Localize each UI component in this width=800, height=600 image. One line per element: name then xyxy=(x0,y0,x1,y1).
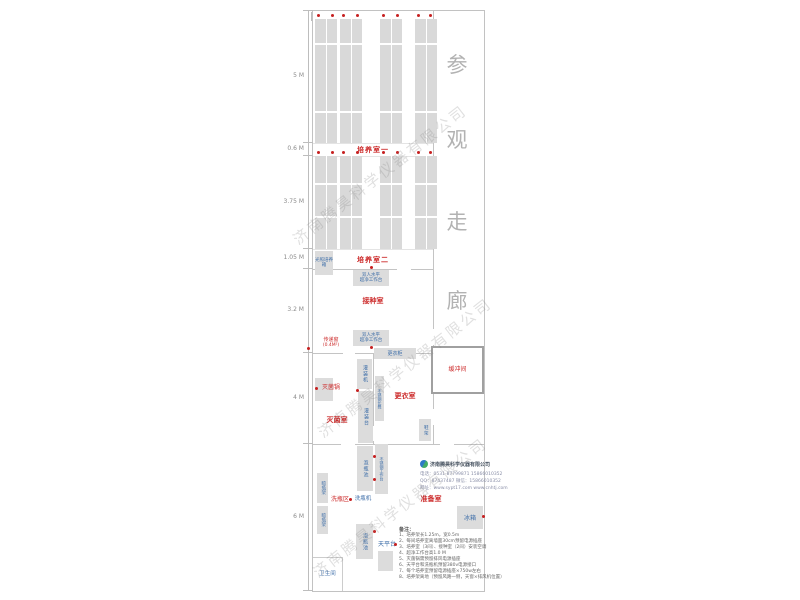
clean-bench-label: 超净工作台 xyxy=(360,338,383,344)
floorplan-canvas: 济南腾昊科学仪器有限公司 济南腾昊科学仪器有限公司 济南腾昊科学仪器有限公司 4… xyxy=(0,0,800,600)
power-outlet-dot xyxy=(373,455,376,458)
notes-list: 1、培养架长1.25m，宽0.5m2、每间培养室离墙面30cm预留电源插座3、培… xyxy=(399,533,481,581)
shelf-divider xyxy=(391,156,392,249)
band-line xyxy=(313,249,433,250)
power-outlet-dot xyxy=(429,151,432,154)
door-opening xyxy=(397,268,411,271)
room-label-culture2: 培养室二 xyxy=(333,255,413,267)
dimension-tick xyxy=(303,443,313,444)
shelf-divider xyxy=(426,19,427,143)
power-outlet-dot xyxy=(373,530,376,533)
dim-left-label: 6 M xyxy=(270,513,304,520)
drying-rack-2: 晾瓶架 xyxy=(317,506,328,534)
dimension-tick xyxy=(303,352,313,353)
shelf-divider xyxy=(426,156,427,249)
buffer-room: 缓冲间 xyxy=(431,346,484,394)
room-label-buffer: 缓冲间 xyxy=(433,348,482,392)
dimension-tick xyxy=(303,590,313,591)
dimension-tick xyxy=(303,142,313,143)
power-outlet-dot xyxy=(356,389,359,392)
light-incubator-label: 光照培养箱 xyxy=(315,258,333,268)
room-label-toilet: 卫生间 xyxy=(313,558,342,591)
balance-table-box xyxy=(378,551,393,571)
room-label-prep: 准备室 xyxy=(415,494,447,505)
room-label-inoculation: 接种室 xyxy=(343,296,403,308)
shelf-divider xyxy=(326,156,327,249)
shelf-divider xyxy=(380,43,402,45)
power-outlet-dot xyxy=(315,387,318,390)
drying-rack-label: 晾瓶架 xyxy=(320,481,325,495)
shoe-rack-label: 鞋架 xyxy=(423,425,428,436)
light-incubator: 光照培养箱 xyxy=(315,251,333,275)
room-label-changing: 更衣室 xyxy=(385,391,425,403)
shelf-divider xyxy=(415,216,437,218)
drying-rack-1: 晾瓶架 xyxy=(317,473,328,503)
power-outlet-dot xyxy=(342,14,345,17)
shelf-divider xyxy=(340,43,362,45)
soak-pool-1: 泡瓶池 xyxy=(357,446,373,491)
company-logo xyxy=(420,460,428,468)
filling-machine: 灌装机 xyxy=(357,359,372,389)
dim-left-label: 0.6 M xyxy=(270,145,304,152)
dim-left-label: 1.05 M xyxy=(270,254,304,261)
stainless-bench-label: 不锈钢长凳 xyxy=(378,389,382,409)
power-outlet-dot xyxy=(396,14,399,17)
power-outlet-dot xyxy=(342,151,345,154)
shelf-divider xyxy=(351,19,352,143)
shelf-divider xyxy=(326,19,327,143)
power-outlet-dot xyxy=(307,347,310,350)
shelf-divider xyxy=(315,43,337,45)
shelf-divider xyxy=(315,111,337,113)
autoclave-label: 灭菌锅 xyxy=(316,383,346,393)
power-outlet-dot xyxy=(482,515,485,518)
power-outlet-dot xyxy=(349,498,352,501)
power-outlet-dot xyxy=(331,151,334,154)
drying-rack-label: 晾瓶架 xyxy=(320,513,325,527)
locker-label: 更衣柜 xyxy=(387,350,402,357)
power-outlet-dot xyxy=(356,151,359,154)
filling-machine-label: 灌装机 xyxy=(362,365,367,383)
clean-bench-label: 超净工作台 xyxy=(360,278,383,284)
clean-bench-2: 双人水平 超净工作台 xyxy=(353,330,389,346)
door-opening xyxy=(341,443,355,446)
power-outlet-dot xyxy=(370,266,373,269)
corridor-char: 走 xyxy=(443,208,471,234)
clean-bench-1: 双人水平 超净工作台 xyxy=(353,270,389,286)
room-label-wash-area: 洗瓶区 xyxy=(329,496,351,505)
left-dimension-line xyxy=(308,10,309,590)
notes-title: 备注： xyxy=(399,526,481,533)
shelf-divider xyxy=(380,183,402,185)
company-phone: 电话：0531-87799871 15866010352 xyxy=(420,471,502,477)
shelf-divider xyxy=(315,183,337,185)
soak-pool-label: 泡瓶池 xyxy=(362,533,367,551)
shelf-divider xyxy=(315,216,337,218)
power-outlet-dot xyxy=(382,151,385,154)
shelf-divider xyxy=(340,183,362,185)
dim-left-label: 3.75 M xyxy=(270,198,304,205)
dim-left-label: 5 M xyxy=(270,72,304,79)
corridor-char: 观 xyxy=(443,126,471,152)
stainless-bench: 不锈钢长凳 xyxy=(375,376,384,421)
shelf-divider xyxy=(351,156,352,249)
power-outlet-dot xyxy=(370,346,373,349)
toilet-room: 卫生间 xyxy=(313,557,343,591)
company-name: 济南腾昊科学仪器有限公司 xyxy=(430,461,490,468)
corridor-char: 参 xyxy=(443,51,471,77)
power-outlet-dot xyxy=(382,14,385,17)
company-qq: QQ：87437487 微信：15866010352 xyxy=(420,478,501,484)
door-opening xyxy=(432,329,435,345)
power-outlet-dot xyxy=(317,14,320,17)
power-outlet-dot xyxy=(417,151,420,154)
shelf-divider xyxy=(380,216,402,218)
power-outlet-dot xyxy=(317,151,320,154)
stainless-worktable: 不锈钢工作台 xyxy=(375,444,388,494)
stainless-worktable-label: 不锈钢工作台 xyxy=(380,457,384,481)
power-outlet-dot xyxy=(373,478,376,481)
locker: 更衣柜 xyxy=(374,348,416,359)
door-opening xyxy=(343,352,355,355)
filling-table: 灌装台 xyxy=(358,391,373,443)
shelf-divider xyxy=(380,111,402,113)
dimension-tick xyxy=(303,268,313,269)
dim-left-label: 4 M xyxy=(270,394,304,401)
shelf-divider xyxy=(391,19,392,143)
fridge-label: 冰箱 xyxy=(464,513,476,522)
dimension-tick xyxy=(303,155,313,156)
door-opening xyxy=(432,409,435,425)
wall-middle-prep xyxy=(313,444,484,445)
power-outlet-dot xyxy=(394,543,397,546)
door-opening xyxy=(440,443,454,446)
filling-table-label: 灌装台 xyxy=(363,408,368,426)
dimension-tick xyxy=(303,248,313,249)
shelf-divider xyxy=(415,183,437,185)
lab-floorplan: 培养室一 培养室二 接种室 灭菌室 更衣室 准备室 洗瓶区 传递窗 (0.4M²… xyxy=(312,10,485,592)
dimension-tick xyxy=(303,10,313,11)
pass-window-size: (0.4M²) xyxy=(317,343,345,348)
soak-pool-2: 泡瓶池 xyxy=(356,524,373,559)
note-item: 8、培养架离地（预留风路一侧，天窗×排风机位置） xyxy=(399,575,481,581)
corridor-char: 廊 xyxy=(443,287,471,313)
soak-pool-label: 泡瓶池 xyxy=(363,460,368,478)
room-label-sterilization: 灭菌室 xyxy=(316,415,358,427)
pass-window: 传递窗 (0.4M²) xyxy=(317,336,345,348)
shelf-divider xyxy=(340,216,362,218)
pass-window-label: 传递窗 xyxy=(317,336,345,343)
shelf-divider xyxy=(340,111,362,113)
power-outlet-dot xyxy=(331,14,334,17)
shelf-divider xyxy=(415,111,437,113)
power-outlet-dot xyxy=(396,151,399,154)
dim-left-label: 3.2 M xyxy=(270,306,304,313)
bottle-washer-label: 洗瓶机 xyxy=(353,495,373,504)
company-web: 网址：www.sypt17.com www.cnhtj.com xyxy=(420,485,508,491)
notes-block: 备注： 1、培养架长1.25m，宽0.5m2、每间培养室离墙面30cm预留电源插… xyxy=(399,526,481,588)
power-outlet-dot xyxy=(429,14,432,17)
power-outlet-dot xyxy=(356,14,359,17)
shelf-divider xyxy=(415,43,437,45)
power-outlet-dot xyxy=(417,14,420,17)
shoe-rack: 鞋架 xyxy=(419,419,431,441)
band-line xyxy=(313,143,433,144)
